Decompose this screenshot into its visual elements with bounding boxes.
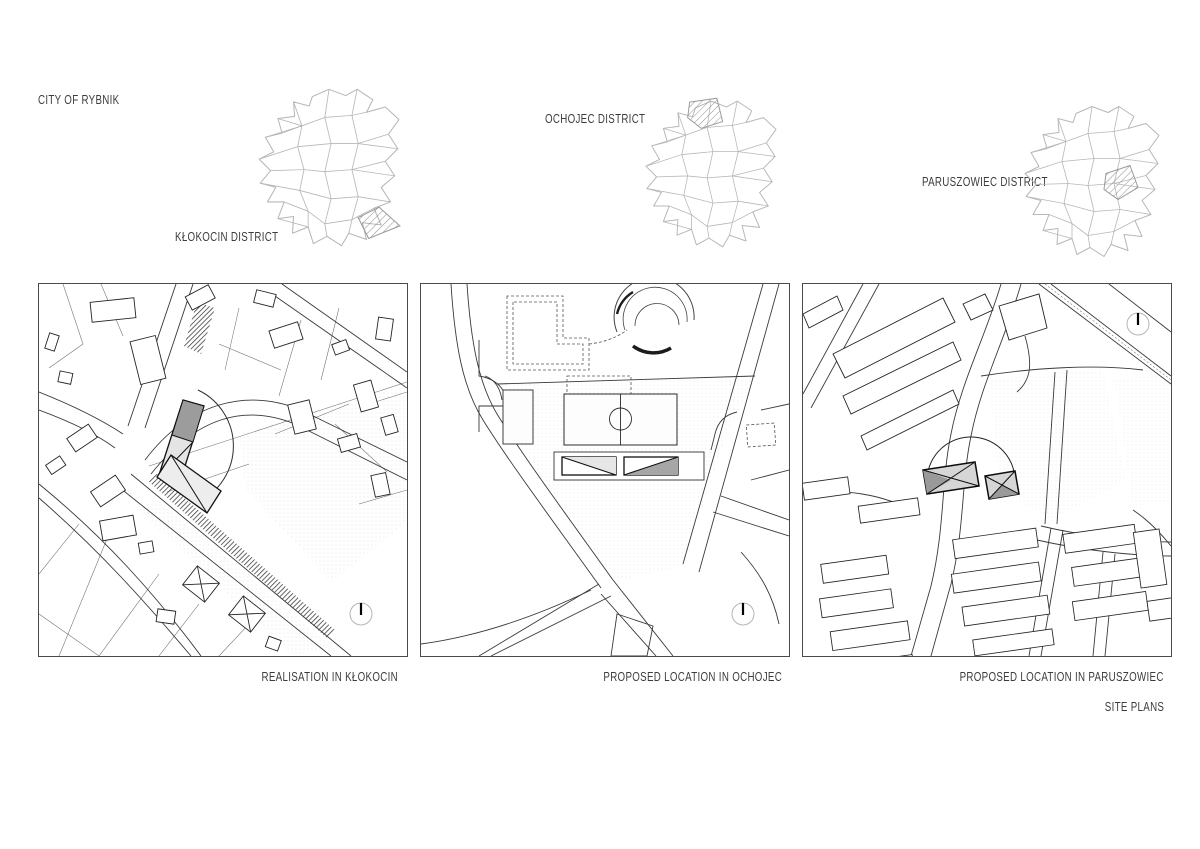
north-arrow-icon xyxy=(1127,313,1149,335)
district-map-ochojec xyxy=(643,97,779,250)
north-arrow-icon xyxy=(350,603,372,625)
city-title: CITY OF RYBNIK xyxy=(38,93,142,107)
site-plan-paruszowiec xyxy=(802,283,1172,657)
presentation-sheet: CITY OF RYBNIK KŁOKOCIN DISTRICT OCHOJEC… xyxy=(0,0,1200,849)
site-plan-ochojec-drawing xyxy=(421,284,789,656)
circular-structure xyxy=(614,284,694,353)
caption-ochojec: PROPOSED LOCATION IN OCHOJEC xyxy=(422,670,782,684)
caption-paruszowiec: PROPOSED LOCATION IN PARUSZOWIEC xyxy=(806,670,1164,684)
site-plan-paruszowiec-drawing xyxy=(803,284,1171,656)
sports-fields xyxy=(503,390,677,445)
site-plan-klokocin-drawing xyxy=(39,284,407,656)
district-highlight-klokocin xyxy=(358,207,400,238)
small-structure xyxy=(611,614,653,656)
sheet-title: SITE PLANS xyxy=(806,700,1164,714)
site-plan-ochojec xyxy=(420,283,790,657)
north-arrow-icon xyxy=(732,603,754,625)
housing-blocks xyxy=(803,477,1171,656)
proposed-buildings xyxy=(554,452,704,480)
district-highlight-ochojec xyxy=(688,98,723,128)
caption-klokocin: REALISATION IN KŁOKOCIN xyxy=(38,670,398,684)
district-map-paruszowiec xyxy=(1022,102,1162,260)
district-highlight-paruszowiec xyxy=(1104,166,1138,200)
field-texture xyxy=(989,368,1171,520)
site-plan-klokocin xyxy=(38,283,408,657)
district-map-klokocin xyxy=(256,86,402,248)
